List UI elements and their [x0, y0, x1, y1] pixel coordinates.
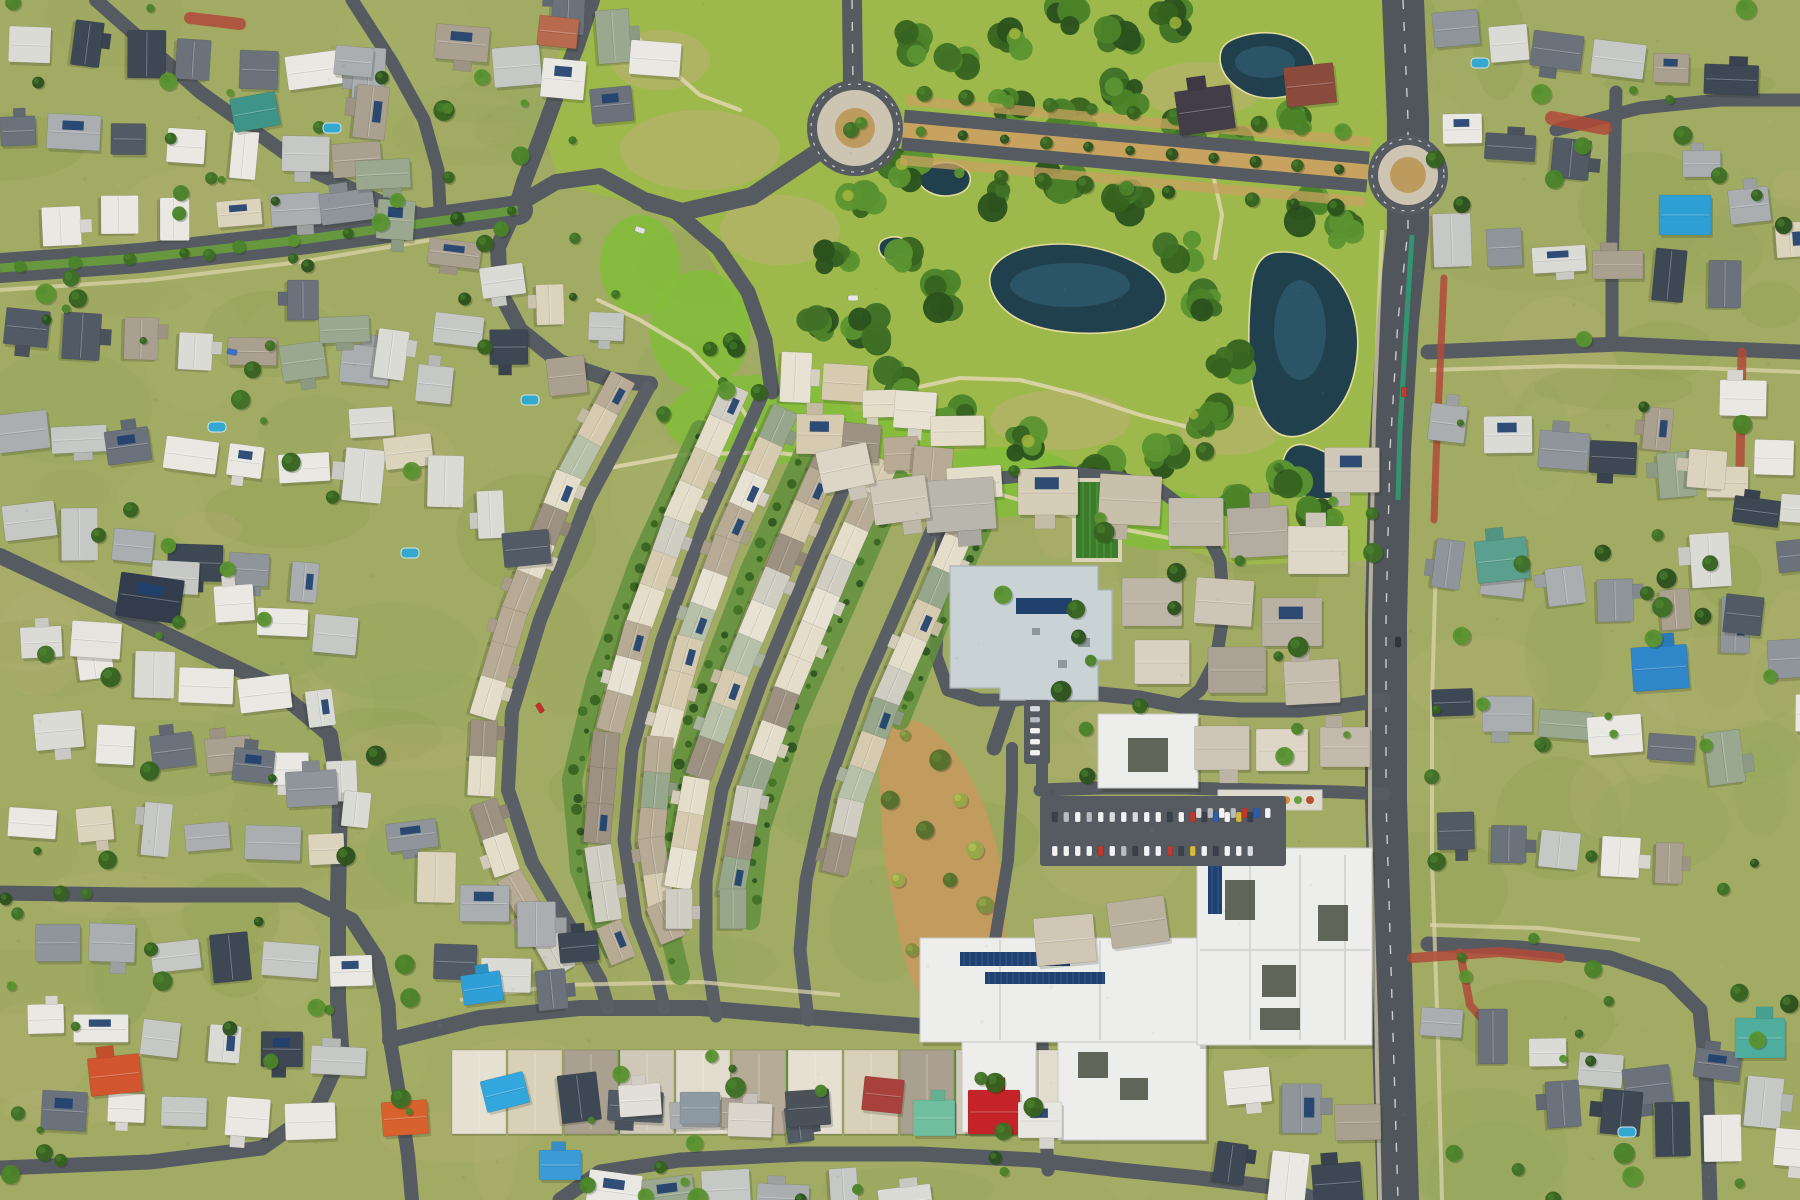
- house: [1659, 195, 1713, 238]
- grain: [370, 573, 374, 577]
- grain: [813, 1081, 816, 1084]
- roof-ridge: [1445, 128, 1480, 129]
- grain: [354, 96, 356, 98]
- grain: [1428, 1121, 1432, 1125]
- grain: [52, 946, 53, 947]
- grain: [424, 565, 427, 568]
- grain: [743, 840, 746, 843]
- grain: [236, 571, 238, 573]
- grain: [118, 845, 120, 847]
- tree-highlight: [1081, 770, 1088, 777]
- house: [226, 130, 260, 182]
- solar-panels: [450, 31, 472, 42]
- park-tree: [1284, 205, 1316, 237]
- grain: [879, 421, 880, 422]
- grain: [1569, 430, 1570, 431]
- house: [1577, 1052, 1626, 1092]
- grain: [817, 245, 818, 246]
- tree-highlight: [166, 134, 171, 139]
- tree-highlight: [1367, 509, 1373, 515]
- grain: [212, 336, 214, 338]
- solar-panels: [1304, 1098, 1314, 1118]
- grain: [518, 739, 522, 743]
- house-wing: [1704, 1040, 1721, 1051]
- house-wing: [552, 1142, 566, 1151]
- solar-panels: [554, 66, 572, 78]
- house-wing: [1635, 420, 1645, 435]
- grain: [913, 994, 915, 996]
- tree-highlight: [289, 255, 294, 260]
- grain: [736, 482, 739, 485]
- backyard-tree: [874, 539, 881, 546]
- tree-highlight: [227, 90, 230, 93]
- tree-highlight: [1430, 855, 1438, 863]
- grain: [294, 1050, 297, 1053]
- tree-highlight: [393, 1091, 402, 1100]
- tree-highlight: [960, 92, 967, 99]
- grain: [391, 818, 393, 820]
- tree-highlight: [1547, 172, 1555, 180]
- grain: [1229, 838, 1230, 839]
- tree-highlight: [93, 530, 100, 537]
- grain: [711, 858, 712, 859]
- grain: [245, 809, 247, 811]
- grain: [992, 186, 995, 189]
- house-wing: [45, 996, 58, 1005]
- grain: [963, 38, 965, 40]
- tree-highlight: [141, 338, 144, 341]
- grain: [254, 996, 257, 999]
- tree-highlight: [43, 316, 47, 320]
- grain: [366, 46, 369, 49]
- house: [0, 409, 53, 456]
- grain: [233, 387, 236, 390]
- house-wing: [54, 748, 71, 761]
- house-wing: [158, 724, 174, 736]
- house-wing: [692, 906, 700, 920]
- solar-panels: [341, 961, 358, 969]
- parked-car: [1196, 808, 1202, 818]
- house-wing: [957, 530, 982, 547]
- parked-car: [1202, 846, 1208, 856]
- grain: [1380, 1077, 1382, 1079]
- solar-panels: [1792, 231, 1800, 245]
- tree-highlight: [932, 752, 942, 762]
- parked-car: [1052, 812, 1058, 822]
- house-wing: [1536, 1094, 1547, 1110]
- parked-car: [1248, 812, 1254, 822]
- grain: [699, 419, 702, 422]
- grain: [1101, 131, 1102, 132]
- house: [1652, 1102, 1691, 1159]
- grain: [656, 1071, 658, 1073]
- house: [464, 755, 496, 798]
- house: [1135, 640, 1192, 687]
- grain: [194, 812, 198, 816]
- parked-car: [1213, 812, 1219, 822]
- tree-highlight: [705, 343, 712, 350]
- backyard-tree: [577, 867, 583, 873]
- grain: [496, 764, 499, 767]
- tree-highlight: [1236, 557, 1241, 562]
- backyard-tree: [674, 759, 685, 770]
- tree-highlight: [314, 123, 320, 129]
- house: [501, 529, 553, 571]
- grain: [1721, 55, 1724, 58]
- grain: [1714, 942, 1717, 945]
- solar-array: [1208, 866, 1222, 914]
- grain: [1460, 168, 1463, 171]
- grain: [1609, 241, 1612, 244]
- grain: [742, 1038, 745, 1041]
- grain: [166, 428, 170, 432]
- house-wing: [598, 340, 610, 349]
- grain: [1294, 487, 1295, 488]
- grain: [697, 33, 699, 35]
- grain: [1751, 1051, 1754, 1054]
- tree-highlight: [571, 234, 576, 239]
- house: [628, 40, 683, 81]
- grain: [314, 1141, 318, 1145]
- tree-highlight: [1293, 724, 1298, 729]
- grain: [438, 1024, 442, 1028]
- grain: [1146, 140, 1147, 141]
- grain: [331, 45, 334, 48]
- grain: [527, 494, 529, 496]
- grain: [726, 556, 727, 557]
- tree-highlight: [907, 945, 913, 951]
- house: [1529, 1038, 1569, 1070]
- grain: [1310, 883, 1313, 886]
- house-wing: [231, 475, 244, 486]
- grain: [153, 398, 157, 402]
- house: [1432, 9, 1483, 51]
- grain: [1209, 182, 1211, 184]
- tree-highlight: [147, 5, 151, 9]
- grain: [1784, 1042, 1788, 1046]
- tree-highlight: [13, 909, 19, 915]
- grain: [1112, 316, 1113, 317]
- rooftop-planter: [1294, 796, 1302, 804]
- grain: [1351, 756, 1353, 758]
- grain: [246, 1028, 250, 1032]
- grain: [1294, 143, 1297, 146]
- backyard-tree: [697, 683, 707, 693]
- grain: [980, 909, 983, 912]
- grain: [366, 21, 369, 24]
- house-wing: [902, 519, 923, 535]
- tree-highlight: [234, 242, 240, 248]
- grain: [1342, 553, 1345, 556]
- grain: [1050, 1082, 1052, 1084]
- tree-highlight: [753, 386, 760, 393]
- park-tree: [1273, 469, 1302, 498]
- grain: [1394, 1002, 1395, 1003]
- tree-highlight: [1616, 1145, 1625, 1154]
- house-wing: [899, 1177, 918, 1188]
- grain: [353, 363, 357, 367]
- grain: [1403, 1113, 1407, 1117]
- tree-highlight: [495, 223, 502, 230]
- house-wing: [566, 983, 576, 998]
- tree-highlight: [72, 1023, 76, 1027]
- tree-highlight: [155, 974, 164, 983]
- tree-highlight: [1625, 1169, 1634, 1178]
- grain: [1447, 599, 1450, 602]
- tree-highlight: [1653, 531, 1658, 536]
- grain: [1302, 734, 1304, 736]
- tree-highlight: [1169, 603, 1175, 609]
- grain: [1014, 757, 1016, 759]
- grain: [702, 769, 704, 771]
- grain: [1767, 363, 1770, 366]
- grain: [1262, 686, 1265, 689]
- grain: [1399, 233, 1401, 235]
- grain: [1231, 893, 1233, 895]
- grain: [1017, 792, 1020, 795]
- grain: [1442, 271, 1444, 273]
- grain: [1737, 887, 1740, 890]
- car-body: [1395, 637, 1401, 647]
- parked-car: [1242, 808, 1248, 818]
- tree-highlight: [955, 169, 960, 174]
- parked-car: [1167, 812, 1173, 822]
- tree-highlight: [959, 132, 964, 137]
- tree-highlight: [883, 793, 891, 801]
- tree-highlight: [39, 648, 47, 656]
- grain: [722, 54, 723, 55]
- tree-highlight: [1630, 87, 1634, 91]
- tree-highlight: [339, 849, 348, 858]
- tree-highlight: [397, 957, 406, 966]
- grain: [1489, 89, 1491, 91]
- grain: [1113, 304, 1116, 307]
- backyard-tree: [721, 631, 728, 638]
- tree-highlight: [1087, 105, 1092, 110]
- house: [1535, 829, 1581, 872]
- house-wing: [229, 1135, 245, 1148]
- house-wing: [1639, 855, 1651, 869]
- tree-highlight: [443, 104, 448, 109]
- park-tree: [813, 240, 835, 262]
- house-wing: [322, 1038, 341, 1047]
- grain: [915, 18, 917, 20]
- grain: [462, 1175, 465, 1178]
- grain: [117, 709, 118, 710]
- parked-car: [1213, 846, 1219, 856]
- house-wing: [1676, 457, 1689, 471]
- tree-highlight: [1782, 997, 1790, 1005]
- tree-highlight: [1736, 1179, 1741, 1184]
- grain: [914, 123, 916, 125]
- grain: [832, 129, 836, 133]
- grain: [539, 804, 542, 807]
- house: [237, 673, 295, 716]
- parked-car: [1179, 846, 1185, 856]
- house: [40, 1090, 90, 1135]
- tree-highlight: [1169, 110, 1177, 118]
- house: [73, 1014, 130, 1045]
- grain: [496, 1161, 499, 1164]
- grain: [1751, 961, 1753, 963]
- tree-highlight: [1010, 467, 1015, 472]
- grain: [197, 116, 200, 119]
- grain: [215, 514, 216, 515]
- house-wing: [331, 461, 345, 480]
- grain: [1505, 18, 1507, 20]
- parked-car: [1179, 812, 1185, 822]
- house-wing: [1507, 126, 1525, 135]
- house-wing: [1325, 716, 1342, 728]
- house-wing: [115, 1122, 128, 1131]
- grain: [1720, 864, 1721, 865]
- backyard-tree: [576, 849, 583, 856]
- parked-car: [1236, 846, 1242, 856]
- grain: [1217, 599, 1219, 601]
- tree-highlight: [1733, 986, 1741, 994]
- tree-highlight: [1096, 524, 1105, 533]
- house: [161, 1096, 209, 1130]
- grain: [1494, 727, 1498, 731]
- grain: [34, 739, 36, 741]
- grain: [403, 456, 404, 457]
- backyard-tree: [668, 958, 675, 965]
- tree-highlight: [15, 262, 20, 267]
- tree-highlight: [374, 216, 382, 224]
- red-paved-path: [190, 18, 240, 24]
- park-tree: [1211, 358, 1232, 379]
- park-tree: [907, 45, 927, 65]
- tree-highlight: [614, 1068, 622, 1076]
- grain: [837, 619, 838, 620]
- park-tree: [923, 292, 954, 323]
- tree-highlight: [37, 1127, 40, 1130]
- grain: [511, 988, 515, 992]
- house: [1208, 647, 1268, 696]
- grain: [866, 404, 869, 407]
- tree-highlight: [720, 384, 728, 392]
- grain: [870, 880, 873, 883]
- grain: [1328, 861, 1329, 862]
- house-wing: [1246, 1102, 1262, 1114]
- tree-highlight: [1045, 100, 1051, 106]
- house: [1647, 733, 1698, 766]
- grain: [1230, 552, 1234, 556]
- tree-highlight: [34, 848, 38, 852]
- house-wing: [158, 324, 169, 339]
- roof-ridge: [1508, 827, 1509, 860]
- tree-highlight: [233, 392, 242, 401]
- tree-highlight: [1096, 514, 1101, 519]
- house-wing: [35, 618, 49, 628]
- tree-highlight: [70, 258, 76, 264]
- tree-highlight: [328, 492, 334, 498]
- grain: [174, 1128, 177, 1131]
- grain: [1094, 854, 1098, 858]
- grain: [1148, 1193, 1150, 1195]
- aerial-suburb-scene: [0, 0, 1800, 1200]
- tree-highlight: [101, 853, 109, 861]
- tree-highlight: [1455, 629, 1463, 637]
- parked-car: [1219, 808, 1225, 818]
- house-wing: [1727, 370, 1743, 381]
- grain: [1466, 563, 1468, 565]
- grain: [808, 546, 810, 548]
- solar-panels: [1497, 423, 1517, 433]
- tree-highlight: [1610, 731, 1614, 735]
- tree-highlight: [1458, 954, 1462, 958]
- grain: [1429, 116, 1430, 117]
- grain: [1114, 453, 1116, 455]
- tree-highlight: [569, 137, 573, 141]
- tree-highlight: [71, 292, 79, 300]
- backyard-tree: [757, 556, 763, 562]
- grain: [714, 993, 716, 995]
- house: [184, 821, 233, 855]
- tree-highlight: [1, 894, 7, 900]
- grain: [1694, 608, 1696, 610]
- house-wing: [631, 1075, 646, 1086]
- grain: [435, 904, 439, 908]
- grain: [453, 727, 455, 729]
- house-wing: [1682, 857, 1691, 871]
- house: [1442, 113, 1484, 147]
- tree-highlight: [125, 504, 132, 511]
- house-wing: [406, 340, 417, 358]
- tree-highlight: [1336, 125, 1343, 132]
- grain: [1596, 872, 1600, 876]
- tree-highlight: [161, 75, 169, 83]
- grain: [274, 1133, 275, 1134]
- tree-highlight: [1578, 333, 1585, 340]
- tree-highlight: [1001, 136, 1005, 140]
- parked-car: [1098, 846, 1104, 856]
- grain: [850, 110, 853, 113]
- backyard-tree: [768, 518, 777, 527]
- parked-car: [1254, 808, 1260, 818]
- grain: [305, 265, 308, 268]
- grain: [1116, 814, 1118, 816]
- grain: [1188, 1146, 1191, 1149]
- house-wing: [1534, 574, 1547, 588]
- house-wing: [542, 0, 552, 7]
- grain: [83, 177, 86, 180]
- grain: [853, 361, 855, 363]
- grain: [1232, 906, 1233, 907]
- grain: [906, 238, 909, 241]
- grain: [1417, 270, 1421, 274]
- tree-highlight: [1752, 191, 1757, 196]
- house-wing: [336, 342, 353, 351]
- backyard-tree: [772, 502, 781, 511]
- tree-highlight: [222, 563, 229, 570]
- grain: [529, 943, 532, 946]
- solar-panels: [305, 574, 313, 590]
- tree-highlight: [1073, 631, 1080, 638]
- backyard-tree: [571, 804, 582, 815]
- aerial-photo-canvas: [0, 0, 1800, 1200]
- house: [540, 57, 589, 103]
- tree-highlight: [1777, 219, 1785, 227]
- house-wing: [14, 345, 30, 357]
- grain: [227, 1022, 230, 1025]
- grain: [1187, 416, 1188, 417]
- house-wing: [767, 1175, 785, 1184]
- solar-panels: [226, 1036, 235, 1052]
- grain: [1776, 792, 1778, 794]
- grain: [886, 1046, 889, 1049]
- tree-highlight: [1295, 122, 1302, 129]
